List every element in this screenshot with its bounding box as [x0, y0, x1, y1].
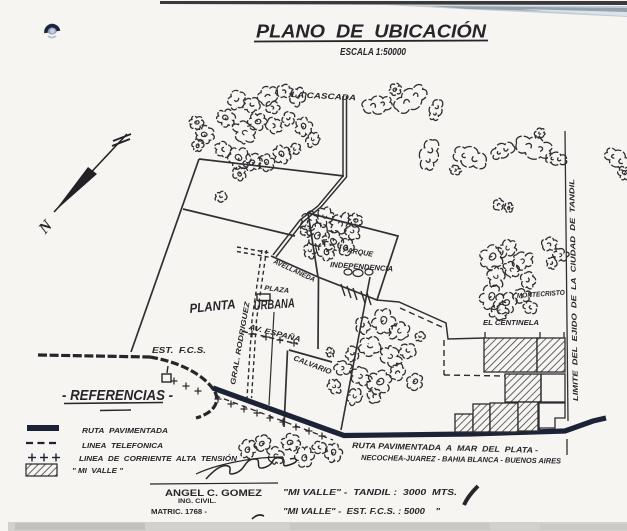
- svg-text:EL CENTINELA: EL CENTINELA: [483, 318, 539, 327]
- svg-text:ING. CIVIL.: ING. CIVIL.: [178, 498, 216, 505]
- svg-text:EST. F.C.S.: EST. F.C.S.: [152, 345, 206, 355]
- svg-text:"MI VALLE" - TANDIL : 3000: "MI VALLE" - TANDIL : 3000 MTS.: [283, 488, 457, 497]
- svg-text:PLANO DE UBICACIÓN: PLANO DE UBICACIÓN: [256, 21, 487, 42]
- svg-text:- REFERENCIAS -: - REFERENCIAS -: [62, 388, 173, 404]
- svg-text:URBANA: URBANA: [253, 295, 295, 313]
- svg-text:LINEA DE CORRIENTE ALTA TE: LINEA DE CORRIENTE ALTA TENSIÓN: [79, 454, 238, 463]
- svg-text:ESCALA 1:50000: ESCALA 1:50000: [340, 47, 406, 58]
- svg-text:" MI VALLE ": " MI VALLE ": [72, 466, 123, 475]
- svg-text:LINEA TELEFONICA: LINEA TELEFONICA: [82, 441, 163, 450]
- svg-text:RUTA PAVIMENTADA: RUTA PAVIMENTADA: [82, 426, 168, 435]
- svg-text:"MI VALLE" - EST. F.C.S. : 50: "MI VALLE" - EST. F.C.S. : 5000 ": [283, 507, 440, 516]
- svg-text:MATRIC. 1768 -: MATRIC. 1768 -: [151, 509, 208, 516]
